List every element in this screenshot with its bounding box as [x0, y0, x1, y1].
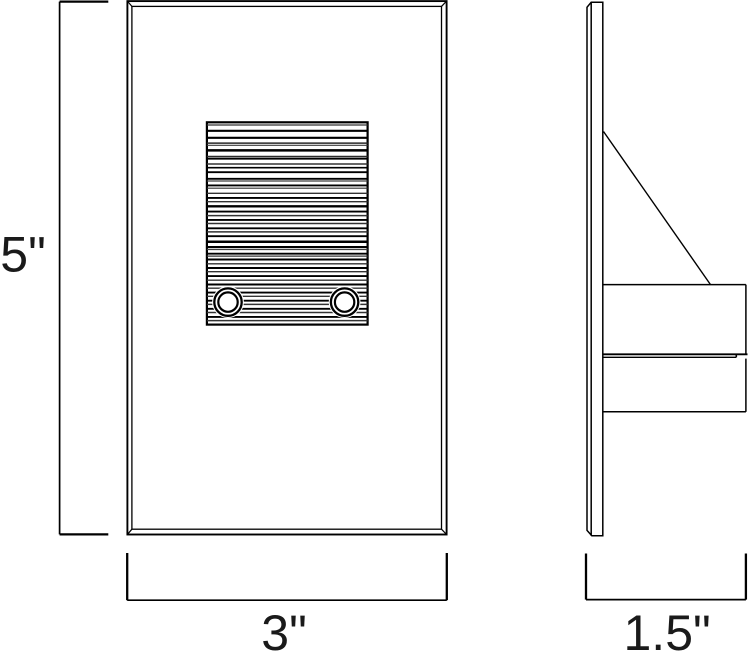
svg-text:3": 3" [261, 605, 307, 661]
svg-text:5": 5" [0, 226, 46, 282]
svg-text:1.5": 1.5" [624, 605, 711, 661]
